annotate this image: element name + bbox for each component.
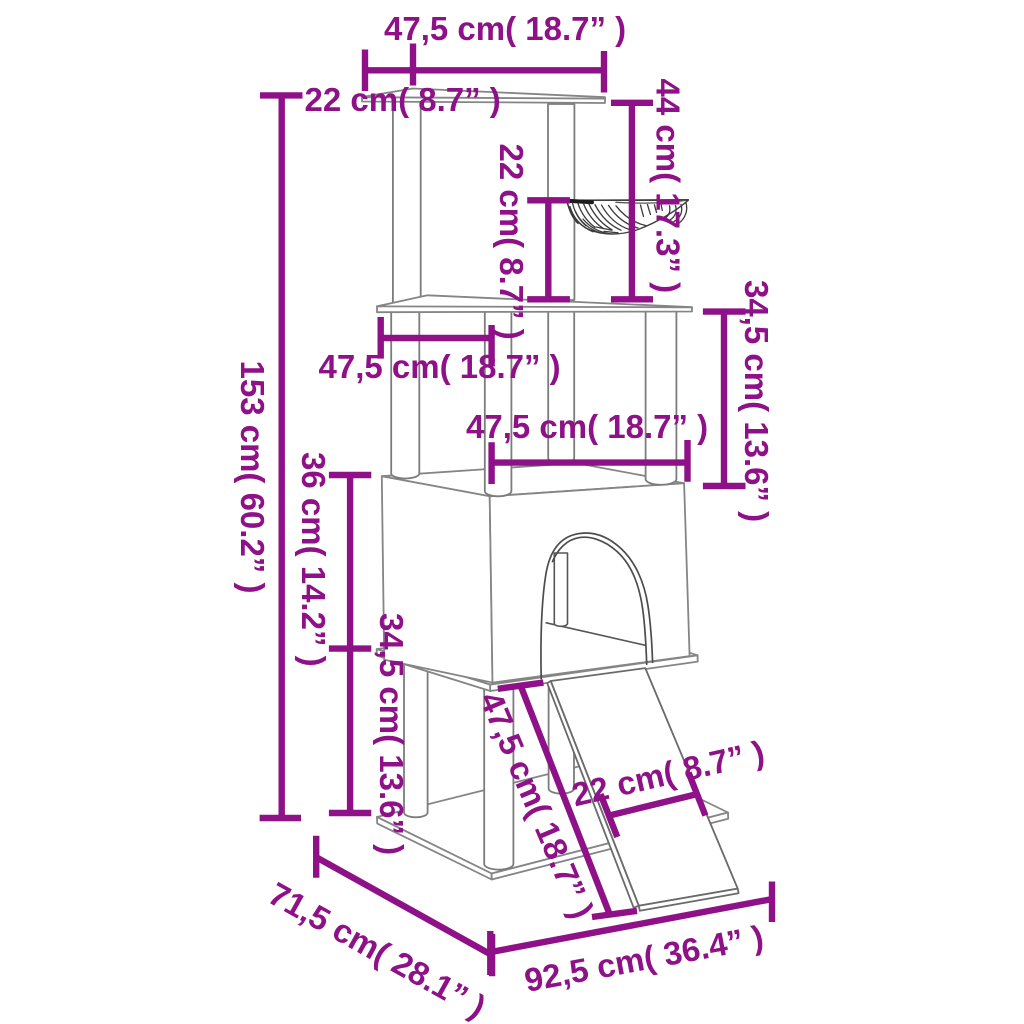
- svg-text:47,5 cm( 18.7” ): 47,5 cm( 18.7” ): [384, 10, 626, 47]
- svg-text:22 cm( 8.7” ): 22 cm( 8.7” ): [305, 81, 501, 118]
- svg-text:47,5 cm( 18.7” ): 47,5 cm( 18.7” ): [319, 348, 561, 385]
- svg-text:34,5 cm( 13.6” ): 34,5 cm( 13.6” ): [738, 280, 775, 522]
- svg-text:36 cm( 14.2” ): 36 cm( 14.2” ): [295, 452, 332, 667]
- svg-text:44 cm( 17.3” ): 44 cm( 17.3” ): [650, 79, 687, 294]
- svg-text:153 cm( 60.2” ): 153 cm( 60.2” ): [234, 361, 271, 594]
- svg-text:47,5 cm( 18.7” ): 47,5 cm( 18.7” ): [466, 408, 708, 445]
- svg-text:22 cm( 8.7” ): 22 cm( 8.7” ): [493, 144, 530, 340]
- svg-text:71,5 cm( 28.1” ): 71,5 cm( 28.1” ): [263, 875, 492, 1024]
- svg-text:92,5 cm( 36.4” ): 92,5 cm( 36.4” ): [521, 918, 766, 999]
- svg-text:34,5 cm( 13.6” ): 34,5 cm( 13.6” ): [373, 613, 410, 855]
